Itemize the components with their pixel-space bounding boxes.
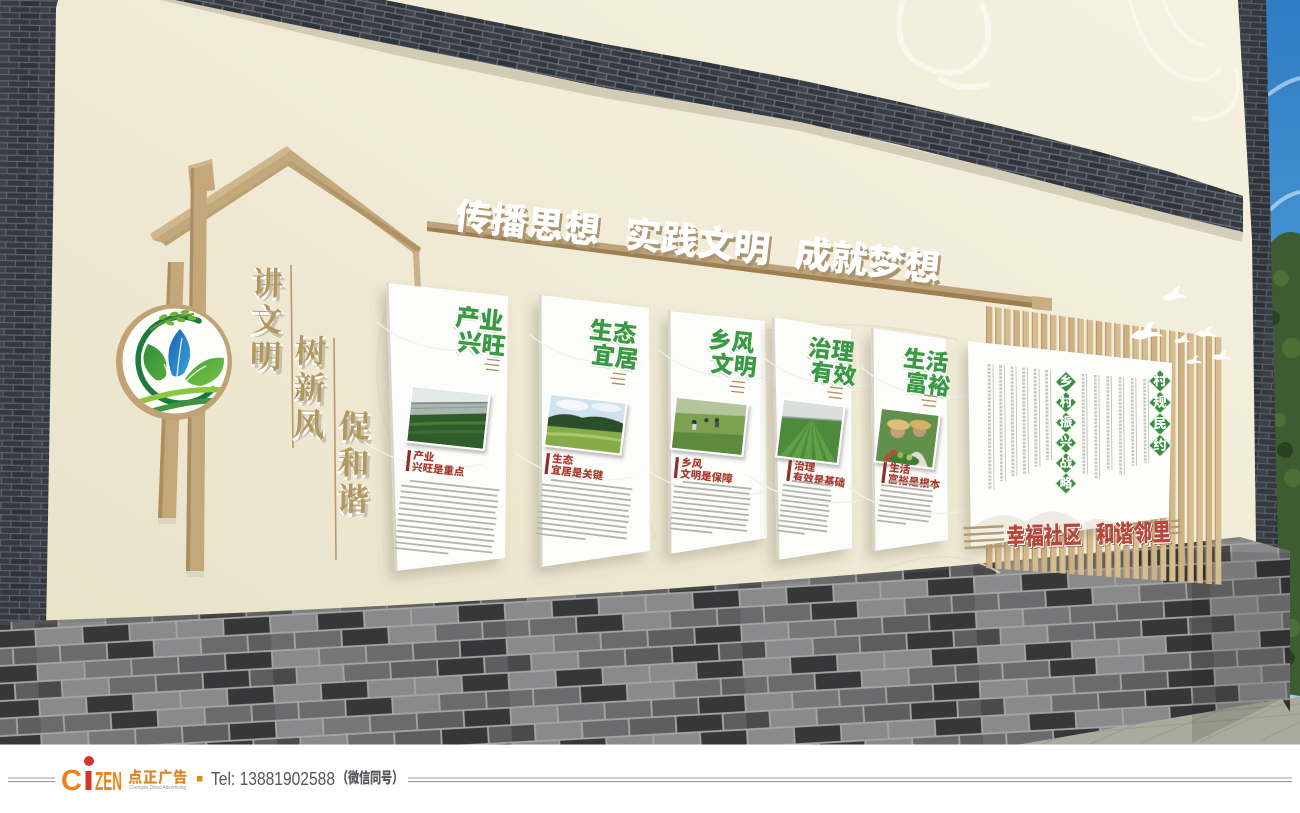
svg-text:Chengdu Dized Advertising: Chengdu Dized Advertising [129, 785, 186, 791]
svg-text:ZEN: ZEN [95, 766, 122, 796]
svg-text:Tel: 13881902588: Tel: 13881902588 [211, 769, 335, 789]
svg-text:C: C [61, 765, 82, 797]
